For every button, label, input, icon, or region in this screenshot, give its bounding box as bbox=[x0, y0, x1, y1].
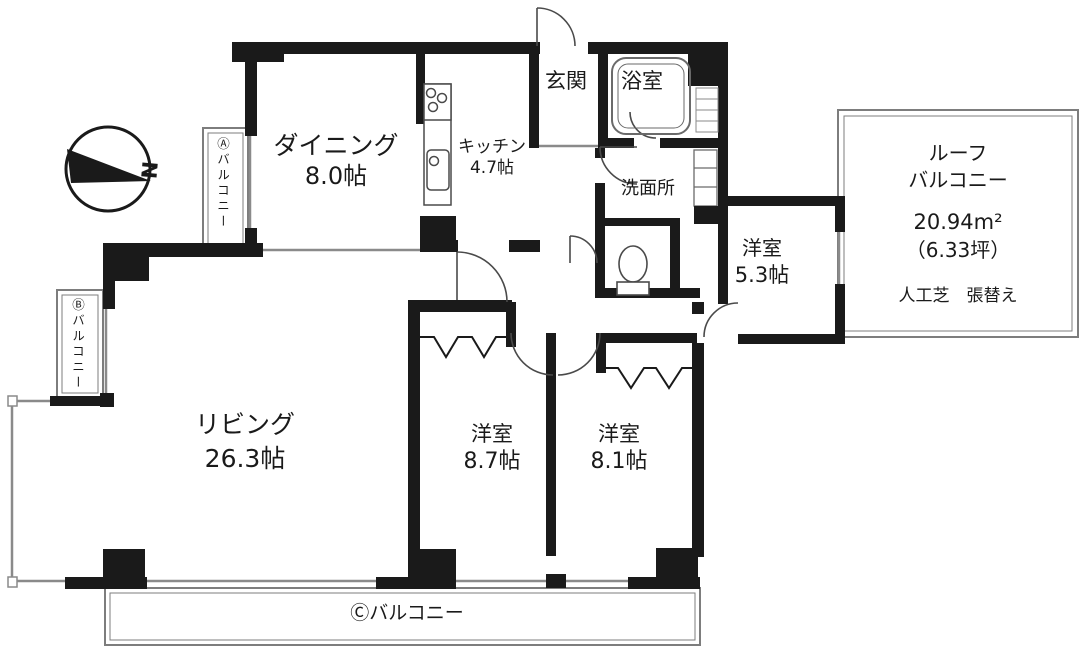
living-room-label: リビング bbox=[195, 411, 295, 439]
roof-balcony-note: 人工芝 張替え bbox=[899, 287, 1018, 306]
toilet-door-arc bbox=[570, 236, 597, 263]
roof-balcony-area-tsubo: （6.33坪） bbox=[906, 239, 1011, 261]
bath-shelf-icon bbox=[696, 88, 718, 132]
western-room-8-7-label: 洋室 bbox=[471, 423, 513, 446]
bedroom-8-1-door-arc bbox=[558, 333, 600, 375]
room-5-3-door-arc bbox=[704, 303, 738, 337]
roof-balcony-area-sqm: 20.94m² bbox=[914, 211, 1003, 234]
entrance-door-arc bbox=[537, 8, 575, 46]
entrance-label: 玄関 bbox=[545, 70, 587, 93]
dining-room-label: ダイニング bbox=[273, 132, 398, 160]
roof-balcony-name-line2: バルコニー bbox=[908, 169, 1008, 191]
living-door-arc bbox=[457, 252, 507, 302]
kitchen-size: 4.7帖 bbox=[470, 159, 514, 178]
balcony-c-label: Ⓒバルコニー bbox=[350, 603, 464, 624]
stove-icon bbox=[424, 84, 451, 120]
roof-balcony-name-line1: ルーフ bbox=[929, 142, 988, 164]
compass-north-label: N bbox=[136, 160, 161, 180]
sink-icon bbox=[427, 150, 449, 190]
floor-plan: N Ⓐバルコニー Ⓑバルコニー Ⓒバルコニー ダイニング 8.0帖 キッチン 4… bbox=[0, 0, 1084, 668]
dining-room-size: 8.0帖 bbox=[305, 163, 367, 189]
kitchen-counter bbox=[424, 84, 451, 205]
western-room-8-1-size: 8.1帖 bbox=[591, 450, 648, 474]
living-room-size: 26.3帖 bbox=[205, 445, 286, 473]
washroom-label: 洗面所 bbox=[621, 179, 675, 199]
washer-shelf-icon bbox=[694, 150, 720, 224]
bathroom-label: 浴室 bbox=[621, 70, 663, 93]
floor-plan-linework bbox=[0, 0, 1084, 668]
kitchen-label: キッチン bbox=[458, 138, 526, 157]
western-room-5-3-size: 5.3帖 bbox=[735, 264, 789, 287]
toilet-icon bbox=[617, 246, 649, 295]
balcony-b-label: Ⓑバルコニー bbox=[68, 298, 87, 391]
closet-icon bbox=[420, 337, 694, 388]
western-room-5-3-label: 洋室 bbox=[742, 237, 782, 259]
western-room-8-7-size: 8.7帖 bbox=[464, 450, 521, 474]
western-room-8-1-label: 洋室 bbox=[598, 423, 640, 446]
balcony-a-label: Ⓐバルコニー bbox=[213, 137, 232, 230]
